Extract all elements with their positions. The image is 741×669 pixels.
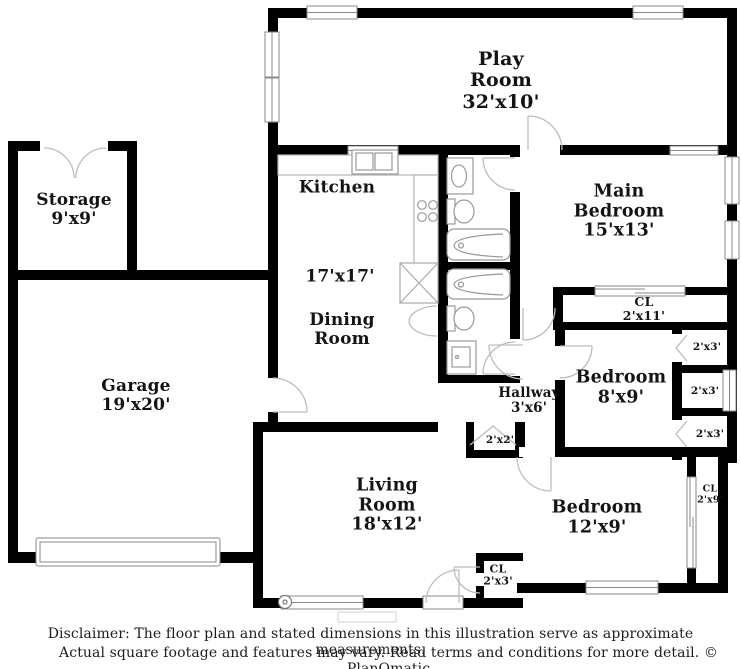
closet-label-living: CL 2'x3' xyxy=(476,564,520,589)
utility-symbol xyxy=(279,596,292,609)
closet-label-bedroom-12x9: CL 2'x9' xyxy=(690,484,730,505)
double-door xyxy=(409,306,437,336)
toilet xyxy=(447,306,474,331)
room-label-play-room: Play Room 32'x10' xyxy=(462,49,540,113)
window xyxy=(586,581,658,594)
garage-door xyxy=(36,538,220,566)
window xyxy=(670,146,718,155)
door-arc xyxy=(523,308,555,340)
closet-label-2x3-mid: 2'x3' xyxy=(682,386,728,398)
door-arc xyxy=(517,457,551,491)
porch-step xyxy=(338,612,396,622)
room-label-storage: Storage 9'x9' xyxy=(24,191,124,229)
room-label-garage: Garage 19'x20' xyxy=(81,377,191,415)
bathtub xyxy=(447,269,510,299)
room-label-dining-dims: 17'x17' xyxy=(290,267,390,286)
room-label-bedroom-12x9: Bedroom 12'x9' xyxy=(542,498,652,537)
window xyxy=(307,6,357,19)
fixtures-layer xyxy=(278,150,510,622)
bathtub xyxy=(447,229,510,260)
floor-plan: Play Room 32'x10' Storage 9'x9' Kitchen … xyxy=(0,0,741,669)
room-label-living-room: Living Room 18'x12' xyxy=(347,477,427,536)
toilet xyxy=(447,199,474,224)
sink xyxy=(447,341,476,374)
front-door-threshold xyxy=(423,596,463,609)
room-label-dining-room: Dining Room xyxy=(300,311,384,349)
room-label-hallway: Hallway 3'x6' xyxy=(489,386,569,416)
double-door xyxy=(44,148,106,178)
room-label-bedroom-8x9: Bedroom 8'x9' xyxy=(573,368,669,407)
closet-label-2x3-bot: 2'x3' xyxy=(687,429,733,441)
closet-label-2x3-top: 2'x3' xyxy=(684,342,730,354)
door-arc xyxy=(273,378,307,412)
shower xyxy=(400,263,438,303)
window xyxy=(265,32,279,77)
window xyxy=(633,6,683,19)
door-arc xyxy=(528,116,562,150)
window xyxy=(725,221,739,259)
window xyxy=(265,78,279,122)
window xyxy=(281,596,363,609)
kitchen-sink xyxy=(352,150,398,174)
room-label-main-bedroom: Main Bedroom 15'x13' xyxy=(573,183,665,242)
window xyxy=(725,157,739,204)
sink xyxy=(447,158,473,194)
disclaimer-line-2: Actual square footage and features may v… xyxy=(0,645,741,669)
bifold-door xyxy=(676,421,687,447)
closet-label-main: CL 2'x11' xyxy=(609,295,679,323)
room-label-kitchen: Kitchen xyxy=(282,178,392,197)
closet-label-2x2: 2'x2' xyxy=(477,435,523,447)
